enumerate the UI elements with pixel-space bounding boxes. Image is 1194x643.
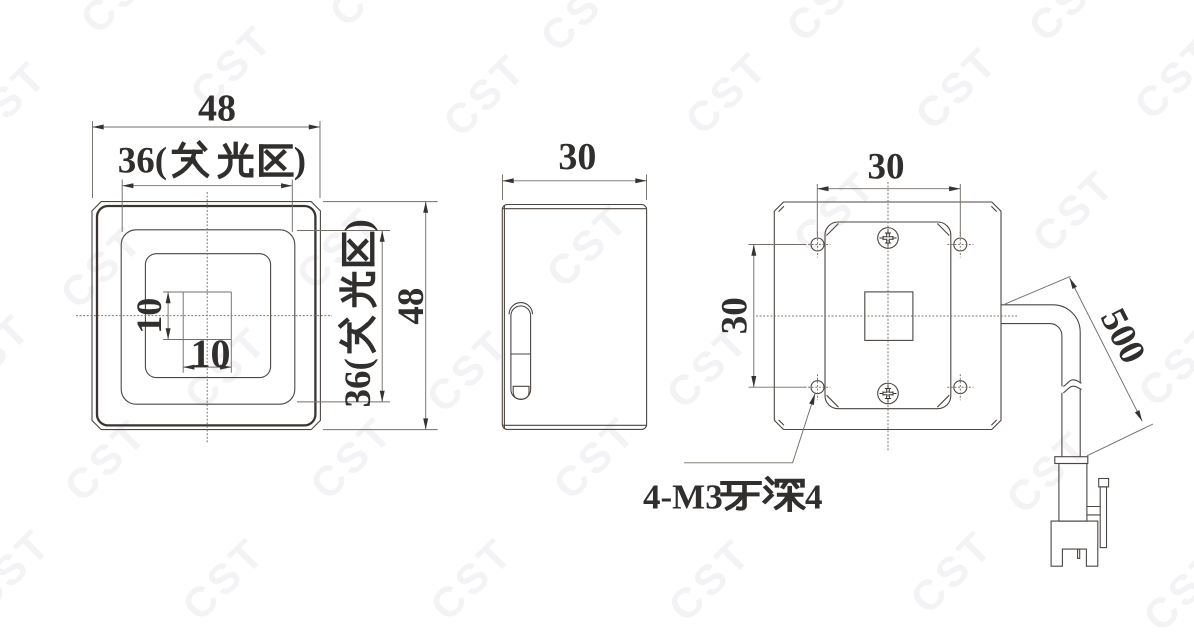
svg-text:10: 10 xyxy=(191,331,231,376)
svg-text:36(: 36( xyxy=(118,140,167,181)
svg-text:10: 10 xyxy=(129,298,169,334)
svg-text:36(: 36( xyxy=(338,358,379,407)
svg-text:4-M3: 4-M3 xyxy=(643,478,723,517)
svg-text:): ) xyxy=(338,219,379,231)
svg-text:48: 48 xyxy=(391,288,432,325)
svg-text:30: 30 xyxy=(868,146,905,187)
svg-text:4: 4 xyxy=(805,478,823,517)
svg-text:30: 30 xyxy=(558,136,596,178)
svg-text:30: 30 xyxy=(715,297,756,334)
svg-text:): ) xyxy=(294,140,306,181)
svg-text:48: 48 xyxy=(198,88,236,130)
